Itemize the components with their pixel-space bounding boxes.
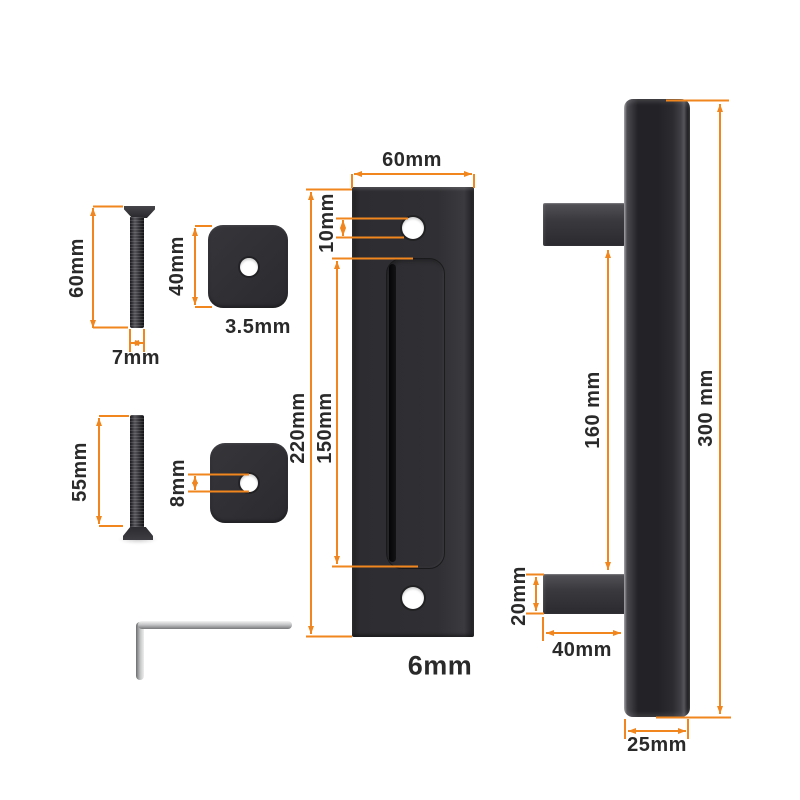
dimension-lines-svg	[0, 0, 800, 800]
product-dimension-diagram: 60mm 7mm 40mm 3.5mm 55mm 8mm 60mm 10mm 2…	[0, 0, 800, 800]
